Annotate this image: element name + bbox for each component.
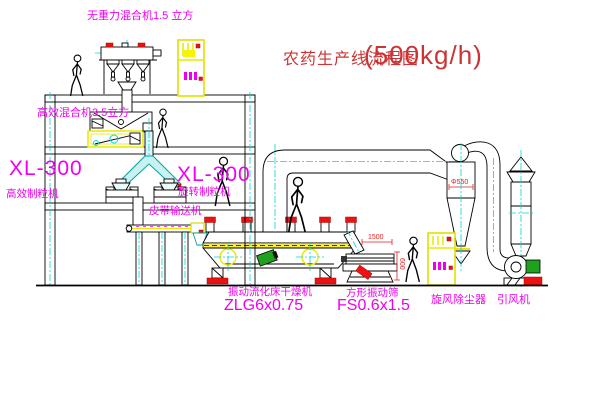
cad-flow-diagram: 无重力混合机1.5 立方 农药生产线流程图 (500kg/h) 高效混合机3.5…	[0, 0, 600, 403]
diagram-title-capacity: (500kg/h)	[364, 42, 483, 68]
label-sieve-model: FS0.6x1.5	[337, 298, 410, 314]
granulator-discharge-duct	[133, 197, 143, 226]
label-high-efficiency-mixer: 高效混合机3.5立方	[37, 108, 129, 119]
dimension-sieve-height: 600	[398, 258, 405, 270]
fluid-bed-dryer-machine	[203, 217, 364, 284]
label-granulator-left-model: XL-300	[9, 158, 83, 179]
induced-draft-fan-machine	[504, 256, 542, 286]
label-dryer-name: 振动流化床干燥机	[228, 287, 312, 298]
control-cabinet-top	[178, 40, 204, 96]
dimension-sieve-length: 1500	[368, 234, 384, 241]
label-granulator-right-name: 旋转制粒机	[178, 187, 231, 198]
worker-figure	[71, 55, 83, 95]
label-induced-draft-fan: 引风机	[497, 295, 530, 306]
belt-conveyor-machine	[126, 223, 207, 285]
control-cabinet-fan	[428, 233, 455, 285]
label-gravity-mixer: 无重力混合机1.5 立方	[87, 11, 193, 22]
worker-figure	[157, 109, 169, 148]
label-dryer-model: ZLG6x0.75	[224, 298, 303, 314]
worker-figure	[406, 237, 419, 281]
label-belt-conveyor: 皮带输送机	[149, 206, 202, 217]
cyclone-separator-machine	[447, 142, 509, 272]
dimension-cyclone: Φ550	[451, 179, 468, 186]
label-granulator-right-model: XL-300	[177, 164, 251, 185]
label-cyclone: 旋风除尘器	[431, 295, 486, 306]
label-granulator-left-name: 高效制粒机	[6, 189, 59, 200]
